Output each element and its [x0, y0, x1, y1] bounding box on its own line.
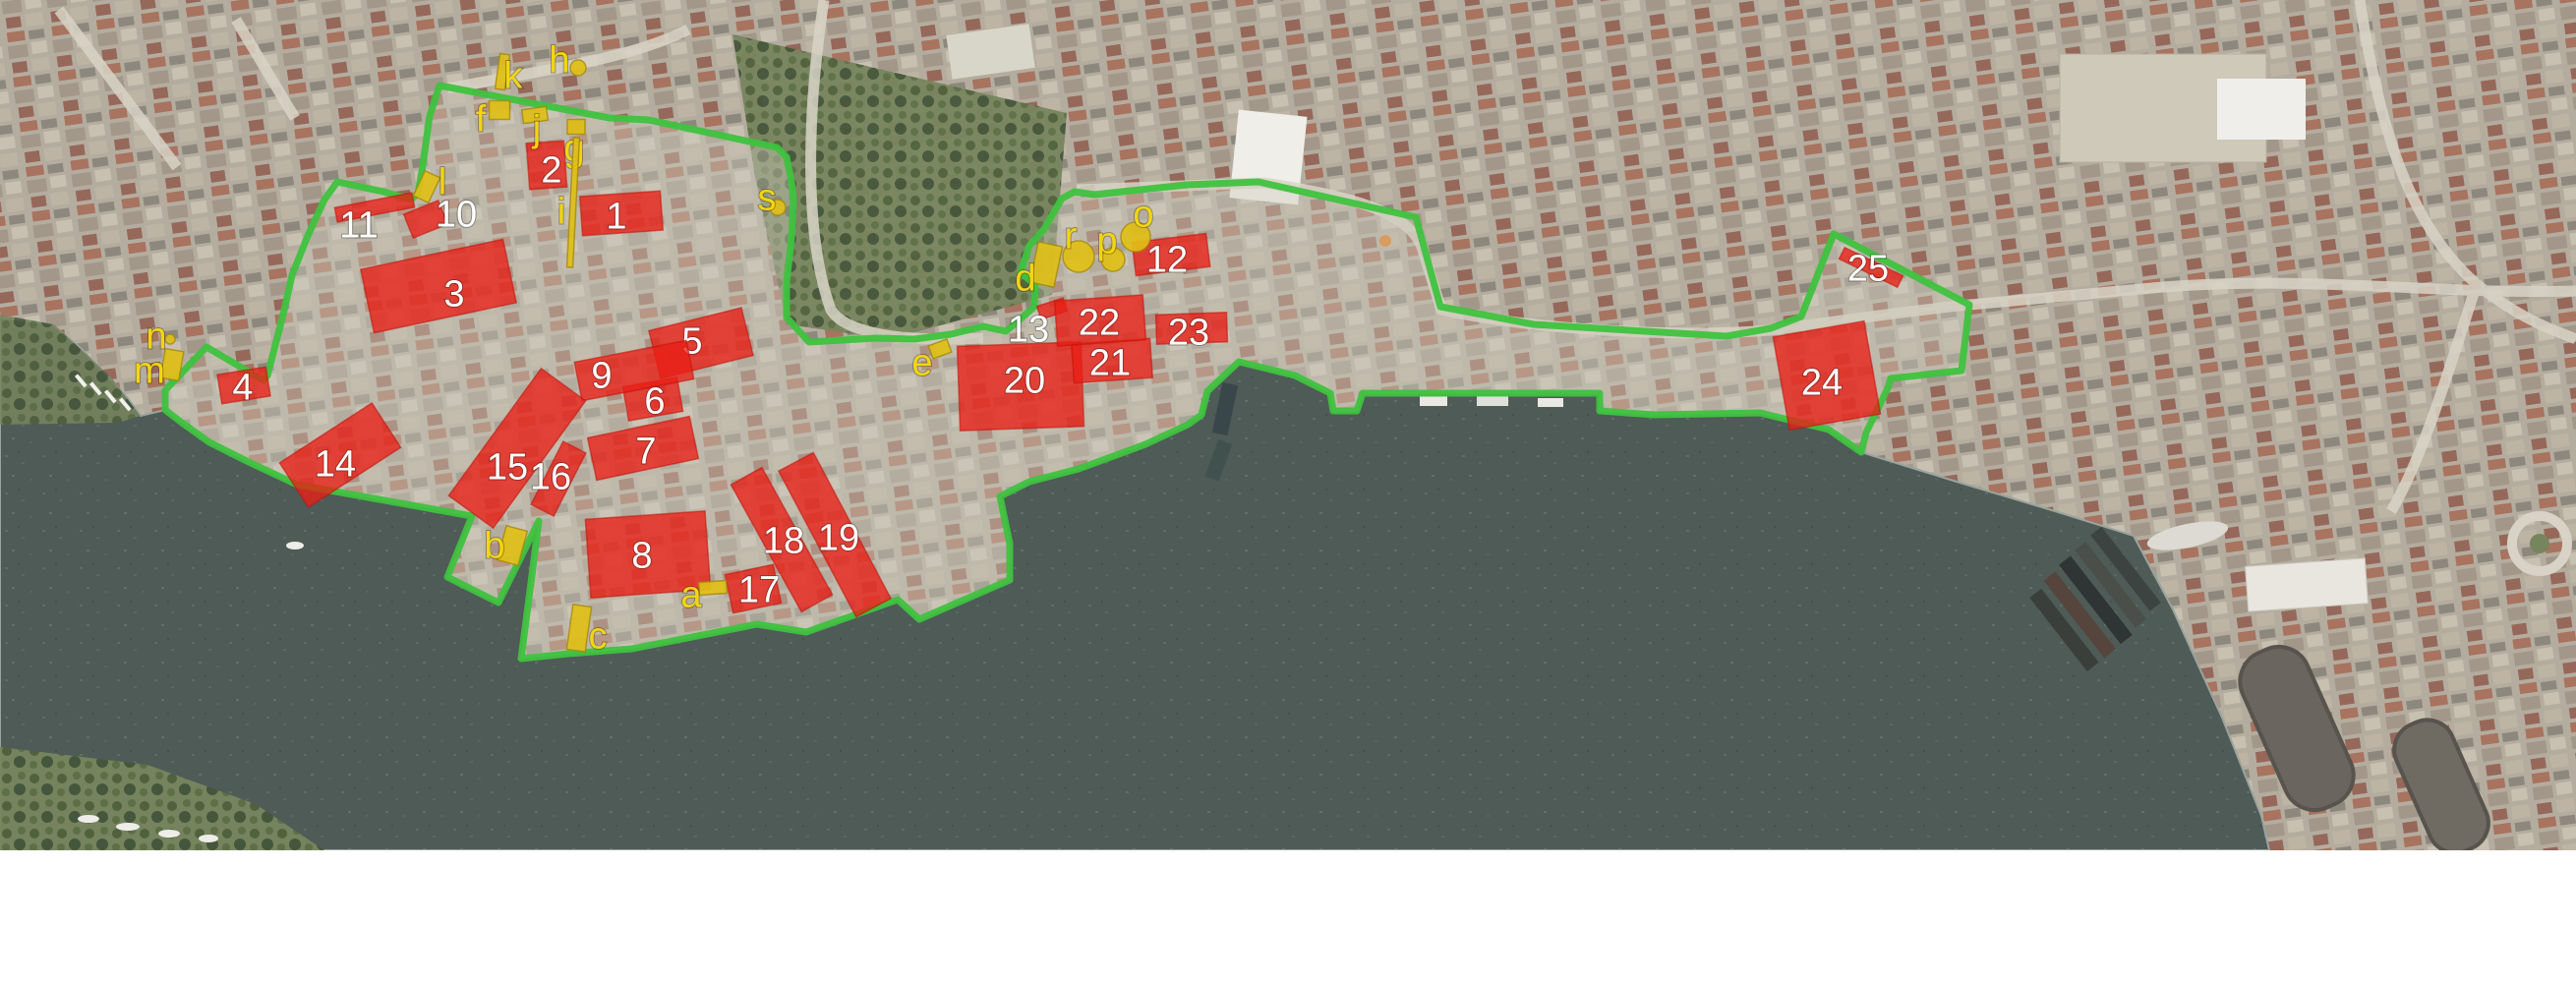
proposed-marker-h: h: [549, 40, 586, 82]
marker-letter-j: j: [532, 109, 541, 150]
building-number-19: 19: [818, 518, 859, 559]
building-number-15: 15: [487, 447, 528, 489]
building-number-23: 23: [1168, 313, 1209, 354]
marker-letter-n: n: [146, 317, 166, 358]
proposed-marker-k: k: [496, 53, 524, 96]
proposed-marker-shape-f: [490, 101, 510, 120]
marker-letter-e: e: [911, 343, 932, 384]
building-number-21: 21: [1089, 343, 1131, 384]
building-number-12: 12: [1146, 240, 1188, 281]
proposed-marker-shape-a: [699, 581, 728, 596]
registered-building-24: 24: [1773, 321, 1880, 431]
building-number-17: 17: [738, 570, 780, 611]
building-number-25: 25: [1847, 249, 1889, 290]
building-number-16: 16: [530, 457, 571, 498]
registered-building-21: 21: [1072, 338, 1153, 383]
marker-letter-a: a: [680, 575, 702, 616]
building-number-22: 22: [1079, 303, 1120, 344]
building-number-3: 3: [443, 274, 464, 316]
marker-letter-c: c: [589, 616, 608, 658]
building-number-14: 14: [315, 444, 356, 486]
registered-building-1: 1: [580, 191, 664, 237]
marker-letter-h: h: [549, 40, 569, 82]
marker-letter-f: f: [476, 99, 487, 141]
building-number-9: 9: [591, 356, 612, 397]
marker-letter-r: r: [1065, 216, 1078, 258]
marker-letter-b: b: [484, 526, 504, 567]
footer: : Tescilli Eserler : Tarihi Sit Alanı : …: [0, 850, 2576, 983]
map-screenshot: 1234567891011121314151617181920212223242…: [0, 0, 2576, 983]
building-number-20: 20: [1004, 361, 1045, 402]
proposed-marker-shape-h: [570, 60, 586, 76]
marker-letter-k: k: [504, 56, 524, 97]
building-number-8: 8: [631, 536, 652, 577]
marker-letter-l: l: [439, 162, 446, 203]
building-number-24: 24: [1801, 363, 1843, 404]
marker-letter-i: i: [557, 192, 565, 233]
marker-letter-o: o: [1133, 195, 1153, 236]
annotation-overlay: 1234567891011121314151617181920212223242…: [0, 0, 2576, 850]
registered-building-22: 22: [1055, 295, 1146, 346]
building-number-2: 2: [541, 150, 561, 192]
marker-letter-d: d: [1015, 259, 1035, 300]
marker-letter-s: s: [758, 178, 777, 219]
marker-letter-p: p: [1096, 221, 1117, 262]
building-number-18: 18: [763, 521, 804, 562]
building-number-4: 4: [232, 368, 253, 409]
building-number-11: 11: [339, 205, 378, 247]
registered-building-20: 20: [958, 342, 1084, 431]
building-number-7: 7: [635, 432, 656, 473]
building-number-1: 1: [606, 197, 626, 238]
